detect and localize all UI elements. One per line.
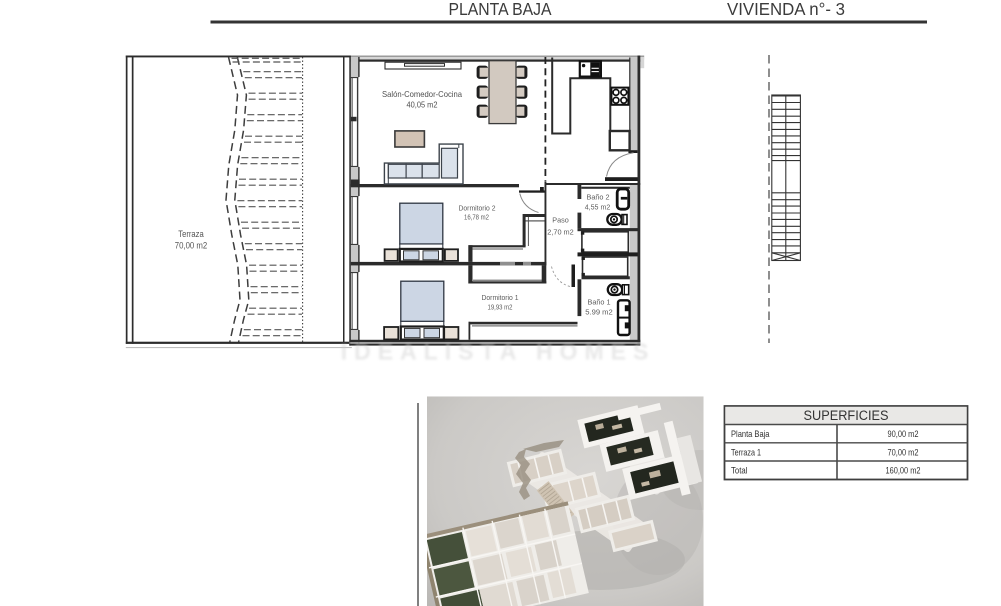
svg-text:Baño 2: Baño 2 <box>587 193 610 202</box>
svg-text:Paso: Paso <box>552 216 569 225</box>
svg-text:Terraza 1: Terraza 1 <box>731 448 761 459</box>
svg-text:4,55 m2: 4,55 m2 <box>585 203 611 212</box>
svg-text:Planta Baja: Planta Baja <box>731 429 770 440</box>
svg-text:Terraza: Terraza <box>178 229 204 239</box>
svg-text:SUPERFICIES: SUPERFICIES <box>804 408 889 423</box>
svg-text:5.99 m2: 5.99 m2 <box>585 307 613 316</box>
svg-text:70,00 m2: 70,00 m2 <box>175 241 208 251</box>
svg-text:90,00 m2: 90,00 m2 <box>888 429 919 440</box>
svg-text:160,00 m2: 160,00 m2 <box>886 466 921 477</box>
svg-text:16,78 m2: 16,78 m2 <box>464 213 489 222</box>
svg-text:Dormitorio 1: Dormitorio 1 <box>482 293 519 302</box>
svg-text:IDEALISTA HOMES: IDEALISTA HOMES <box>341 339 656 365</box>
svg-text:2,70 m2: 2,70 m2 <box>547 227 574 236</box>
svg-text:VIVIENDA n°- 3: VIVIENDA n°- 3 <box>727 0 845 19</box>
svg-text:70,00 m2: 70,00 m2 <box>888 448 919 459</box>
svg-text:40,05 m2: 40,05 m2 <box>407 101 438 110</box>
svg-text:19,93 m2: 19,93 m2 <box>488 303 513 312</box>
svg-text:Total: Total <box>731 466 748 477</box>
svg-text:Dormitorio 2: Dormitorio 2 <box>459 204 496 213</box>
svg-text:Baño 1: Baño 1 <box>588 298 611 307</box>
svg-text:Salón-Comedor-Cocina: Salón-Comedor-Cocina <box>382 90 462 99</box>
svg-text:PLANTA BAJA: PLANTA BAJA <box>449 0 552 19</box>
